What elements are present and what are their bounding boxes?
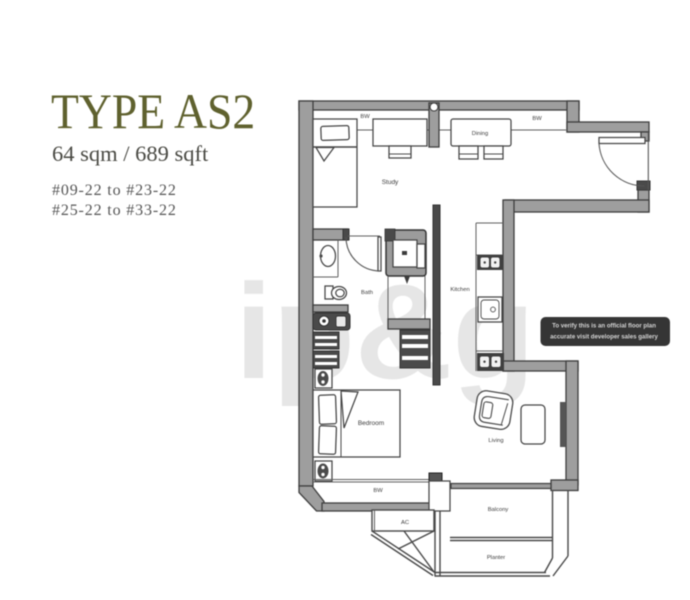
svg-text:To verify this is an official: To verify this is an official floor plan	[552, 323, 656, 330]
svg-text:Planter: Planter	[487, 555, 505, 561]
svg-text:Dining: Dining	[472, 131, 488, 137]
svg-text:Bath: Bath	[361, 290, 373, 296]
svg-text:Living: Living	[488, 438, 503, 444]
svg-text:AC: AC	[401, 520, 409, 526]
svg-text:Kitchen: Kitchen	[450, 287, 469, 293]
svg-text:BW: BW	[360, 114, 370, 120]
svg-text:Bedroom: Bedroom	[358, 420, 384, 427]
svg-text:BW: BW	[532, 116, 542, 122]
svg-text:BW: BW	[373, 488, 383, 494]
svg-text:ip&g: ip&g	[235, 256, 535, 407]
svg-text:accurate visit developer sales: accurate visit developer sales gallery	[550, 334, 658, 341]
svg-text:Balcony: Balcony	[488, 507, 509, 513]
svg-text:Study: Study	[382, 179, 399, 186]
